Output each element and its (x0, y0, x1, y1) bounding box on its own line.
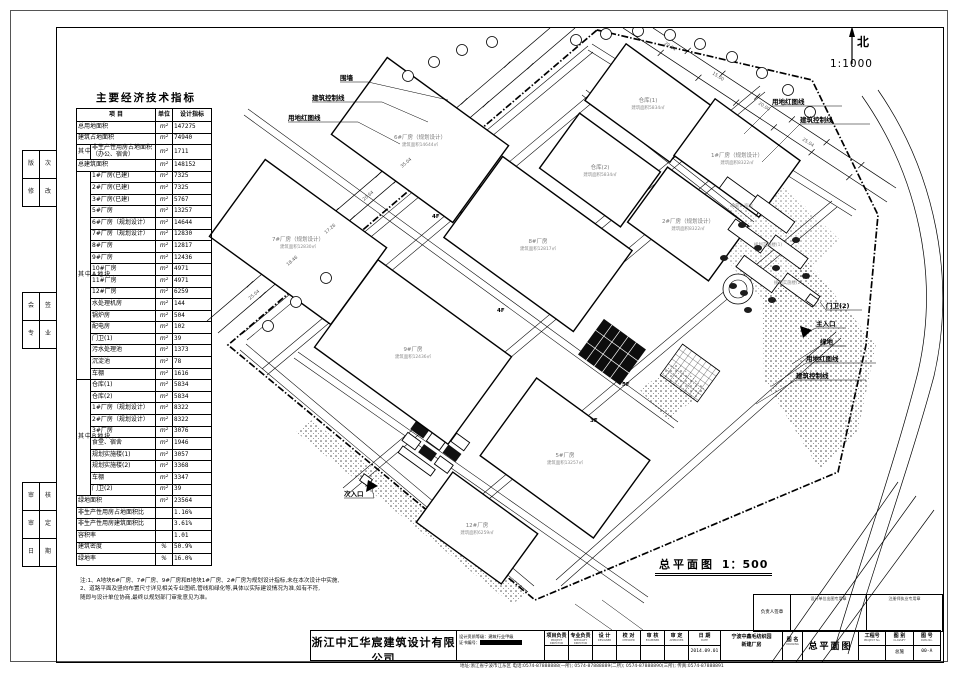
titleblock-column: 设 计DESIGNER (593, 631, 617, 660)
indicator-name: 2#厂房（规划设计） (91, 415, 156, 427)
indicator-value: 144 (173, 299, 212, 311)
group-label: 其中B地块 (77, 380, 91, 496)
indicator-name: 车棚 (91, 473, 156, 485)
indicator-value: 1616 (173, 368, 212, 380)
indicator-row: 总用地面积m²147275 (77, 122, 212, 134)
indicator-row: 绿地面积m²23564 (77, 496, 212, 508)
indicator-unit (156, 519, 173, 531)
indicator-value: 6259 (173, 287, 212, 299)
stamp-cell-registered-seal: 注册师执业专用章 (867, 595, 942, 631)
indicator-value: 1373 (173, 345, 212, 357)
binding-cell: 业 (39, 320, 57, 349)
building-area: 建筑面积12436㎡ (395, 353, 432, 360)
indicator-value: 3.61% (173, 519, 212, 531)
plan-label: 建筑控制线 (795, 371, 829, 380)
group-label: 其中 (77, 145, 91, 160)
indicator-unit: % (156, 554, 173, 566)
indicator-name: 仓库(1) (91, 380, 156, 392)
caption-title: 总平面图 (659, 558, 715, 571)
titleblock-column: 工程号PROJECT No. (859, 631, 886, 660)
indicator-name: 总用地面积 (77, 122, 156, 134)
binding-cell: 期 (39, 538, 57, 567)
col-header-item: 项 目 (77, 109, 156, 122)
plan-label: 用地红图线 (805, 354, 839, 363)
indicator-value: 78 (173, 357, 212, 369)
indicator-value: 148152 (173, 159, 212, 171)
title-block: 浙江中汇华宸建筑设计有限公司 ZHEJIANG ZHONGHUI HUACHEN… (310, 630, 941, 661)
indicator-value: 1711 (173, 145, 212, 160)
indicator-value: 1.16% (173, 507, 212, 519)
indicator-unit: m² (156, 275, 173, 287)
indicator-value: 12830 (173, 229, 212, 241)
building-name: 仓库(2) (591, 163, 610, 171)
indicator-unit: m² (156, 368, 173, 380)
plan-caption: 总平面图 1：500 (655, 556, 772, 576)
indicator-unit: m² (156, 145, 173, 160)
indicator-unit: m² (156, 206, 173, 218)
indicator-unit: m² (156, 252, 173, 264)
certificate-number-redacted (480, 640, 522, 645)
indicator-row: 污水处理池m²1373 (77, 345, 212, 357)
indicator-row: 建筑占地面积m²74940 (77, 133, 212, 145)
indicator-name: 总建筑面积 (77, 159, 156, 171)
drawing-sheet: 版次修改会签专业审核审定日期 (0, 0, 960, 674)
indicator-unit: m² (156, 229, 173, 241)
titleblock-column: 审 定APPROVER (665, 631, 688, 660)
binding-cell: 专 (22, 320, 40, 349)
indicator-row: 门卫(2)m²39 (77, 484, 212, 496)
indicator-row: 12#厂房m²6259 (77, 287, 212, 299)
note-line: 2、道路平面及竖向布置尺寸详见相关专业图纸,管线和绿化等,具体以实际建设情况为准… (80, 585, 330, 593)
indicator-name: 水处理机房 (91, 299, 156, 311)
indicator-unit (156, 530, 173, 542)
stamp-cell-design-seal: 设计单位出图专用章 (791, 595, 867, 631)
indicator-value: 3057 (173, 449, 212, 461)
indicator-value: 147275 (173, 122, 212, 134)
indicator-value: 39 (173, 333, 212, 345)
building-name: 12#厂房 (466, 521, 489, 529)
indicator-name: 非生产性用房占地面积比 (77, 507, 156, 519)
plan-label: 用地红图线 (771, 97, 805, 106)
plan-label: 主入口 (816, 319, 836, 328)
indicator-unit: m² (156, 415, 173, 427)
indicator-unit: m² (156, 133, 173, 145)
indicator-name: 污水处理池 (91, 345, 156, 357)
indicator-value: 102 (173, 322, 212, 334)
indicator-value: 5834 (173, 380, 212, 392)
floor-mark: 3F (590, 418, 598, 424)
binding-cell: 签 (39, 292, 57, 321)
building-area: 建筑面积12830㎡ (280, 243, 317, 250)
roundabout (723, 274, 753, 304)
note-line: 注:1、A地块6#厂房、7#厂房、9#厂房和B地块1#厂房、2#厂房为规划设计指… (80, 577, 330, 585)
indicator-unit: m² (156, 380, 173, 392)
indicator-row: 非生产性用房建筑面积比3.61% (77, 519, 212, 531)
building-area: 建筑面积6259㎡ (460, 529, 494, 536)
indicator-name: 3#厂房(已建) (91, 194, 156, 206)
plan-scale: 1:1000 (830, 58, 873, 70)
indicator-row: 仓库(2)m²5834 (77, 391, 212, 403)
dimension-text: 25.04 (247, 289, 261, 302)
binding-cell: 核 (39, 482, 57, 511)
indicator-row: 食堂、宿舍m²1946 (77, 438, 212, 450)
indicator-value: 1.01 (173, 530, 212, 542)
binding-cell: 改 (39, 178, 57, 207)
plan-label: 用地红图线 (287, 113, 321, 122)
date-value: 2014.09.01 (689, 646, 720, 660)
indicator-name: 12#厂房 (91, 287, 156, 299)
indicator-value: 1946 (173, 438, 212, 450)
indicator-row: 8#厂房m²12817 (77, 241, 212, 253)
indicator-unit: m² (156, 403, 173, 415)
indicator-value: 23564 (173, 496, 212, 508)
indicator-row: 水处理机房m²144 (77, 299, 212, 311)
indicator-unit: m² (156, 426, 173, 438)
indicator-unit: m² (156, 264, 173, 276)
qualification-cell: 设计资质等级：建筑行业甲级 证书编号： (457, 631, 545, 660)
notes: 注:1、A地块6#厂房、7#厂房、9#厂房和B地块1#厂房、2#厂房为规划设计指… (80, 577, 330, 602)
indicator-row: 沉淀池m²78 (77, 357, 212, 369)
floor-mark: 5F (622, 382, 630, 388)
indicator-unit: m² (156, 322, 173, 334)
indicator-table: 项 目 单位 设计指标 总用地面积m²147275建筑占地面积m²74940其中… (76, 108, 212, 566)
binding-cell: 修 (22, 178, 40, 207)
indicator-name: 1#厂房(已建) (91, 171, 156, 183)
date-column: 日 期 DATE 2014.09.01 (689, 631, 721, 660)
building-name: 1#厂房（规划设计） (711, 151, 763, 159)
indicator-row: 其中非生产性用房占地面积（办公、宿舍）m²1711 (77, 145, 212, 160)
indicator-unit: m² (156, 171, 173, 183)
solar-hatch-area (578, 319, 646, 385)
small-building-label: 食堂、宿舍 (731, 202, 754, 209)
building-name: 9#厂房 (403, 345, 423, 353)
indicator-name: 5#厂房 (91, 206, 156, 218)
indicator-name: 建筑占地面积 (77, 133, 156, 145)
indicator-unit: m² (156, 449, 173, 461)
indicator-value: 4971 (173, 275, 212, 287)
indicator-value: 504 (173, 310, 212, 322)
indicator-value: 8322 (173, 403, 212, 415)
indicator-row: 其中B地块仓库(1)m²5834 (77, 380, 212, 392)
titleblock-leaders (575, 600, 643, 630)
plan-label: 门卫(2) (826, 301, 849, 310)
indicator-value: 7325 (173, 183, 212, 195)
indicator-row: 2#厂房(已建)m²7325 (77, 183, 212, 195)
indicator-name: 容积率 (77, 530, 156, 542)
indicator-unit: m² (156, 496, 173, 508)
building-name: 7#厂房（规划设计） (272, 235, 324, 243)
binding-cell: 日 (22, 538, 40, 567)
indicator-name: 非生产性用房占地面积（办公、宿舍） (91, 145, 156, 160)
indicator-row: 配电房m²102 (77, 322, 212, 334)
note-line: 随即与设计单位协商,最终以规划部门审批意见为准。 (80, 594, 330, 602)
indicator-row: 3#厂房(已建)m²5767 (77, 194, 212, 206)
indicator-unit: m² (156, 287, 173, 299)
building-area: 建筑面积5834㎡ (583, 171, 617, 178)
indicator-unit: m² (156, 194, 173, 206)
indicator-value: 5834 (173, 391, 212, 403)
indicator-row: 车棚m²3347 (77, 473, 212, 485)
dimension-text: 20.00 (757, 101, 771, 113)
indicator-value: 16.0% (173, 554, 212, 566)
binding-cell: 次 (39, 150, 57, 179)
drawing-name: 总平面图 (803, 631, 859, 660)
indicator-value: 13257 (173, 206, 212, 218)
indicator-row: 1#厂房（规划设计）m²8322 (77, 403, 212, 415)
date-label: 日 期 (689, 632, 720, 639)
stamp-box: 负责人签章 设计单位出图专用章 注册师执业专用章 (753, 594, 943, 632)
plan-label: 围墙 (340, 73, 354, 82)
building-name: 5#厂房 (555, 451, 575, 459)
col-header-unit: 单位 (156, 109, 173, 122)
indicator-value: 5767 (173, 194, 212, 206)
indicator-name: 规划实施楼(1) (91, 449, 156, 461)
indicator-unit: m² (156, 159, 173, 171)
indicator-value: 3368 (173, 461, 212, 473)
building-area: 建筑面积12817㎡ (520, 245, 557, 252)
indicator-value: 39 (173, 484, 212, 496)
titleblock-column: 项目负责PROJECT DIRECTOR (545, 631, 569, 660)
dimension-text: 15.00 (711, 71, 725, 83)
building-name: 2#厂房（规划设计） (662, 217, 714, 225)
indicator-row: 7#厂房（规划设计）m²12830 (77, 229, 212, 241)
indicator-unit: m² (156, 333, 173, 345)
titleblock-column: 校 对CHECKER (617, 631, 641, 660)
indicator-unit: m² (156, 461, 173, 473)
indicator-name: 仓库(2) (91, 391, 156, 403)
building-area: 建筑面积14644㎡ (402, 141, 439, 148)
binding-cell: 审 (22, 510, 40, 539)
indicator-unit: m² (156, 473, 173, 485)
floor-mark: 4F (497, 308, 505, 314)
project-name-cell: 宁波中鑫毛纺织园 新建厂房 (721, 631, 783, 660)
indicator-value: 3076 (173, 426, 212, 438)
indicator-row: 规划实施楼(2)m²3368 (77, 461, 212, 473)
indicator-table-title: 主要经济技术指标 (96, 90, 196, 105)
project-name-line1: 宁波中鑫毛纺织园 (721, 634, 782, 642)
indicator-name: 6#厂房（规划设计） (91, 217, 156, 229)
indicator-name: 7#厂房（规划设计） (91, 229, 156, 241)
group-label: 其中A地块 (77, 171, 91, 380)
indicator-row: 绿地率%16.0% (77, 554, 212, 566)
building-area: 建筑面积5834㎡ (631, 104, 665, 111)
north-label: 北 (857, 33, 869, 50)
indicator-unit: m² (156, 484, 173, 496)
titleblock-column: 图 号DWG No.00-A (914, 631, 940, 660)
indicator-row: 总建筑面积m²148152 (77, 159, 212, 171)
company-cell: 浙江中汇华宸建筑设计有限公司 ZHEJIANG ZHONGHUI HUACHEN… (311, 631, 457, 660)
building-name: 6#厂房（规划设计） (394, 133, 446, 141)
indicator-name: 建筑密度 (77, 542, 156, 554)
indicator-name: 门卫(1) (91, 333, 156, 345)
building-area: 建筑面积8322㎡ (671, 225, 705, 232)
titleblock-column: 审 核EXAMINER (641, 631, 665, 660)
indicator-value: 12436 (173, 252, 212, 264)
indicator-value: 7325 (173, 171, 212, 183)
indicator-name: 车棚 (91, 368, 156, 380)
plan-label: 建筑控制线 (311, 93, 345, 102)
indicator-row: 9#厂房m²12436 (77, 252, 212, 264)
indicator-value: 74940 (173, 133, 212, 145)
indicator-value: 14644 (173, 217, 212, 229)
indicator-name: 食堂、宿舍 (91, 438, 156, 450)
indicator-unit (156, 507, 173, 519)
indicator-name: 沉淀池 (91, 357, 156, 369)
indicator-unit: m² (156, 217, 173, 229)
indicator-name: 9#厂房 (91, 252, 156, 264)
certificate-label: 证书编号： (459, 640, 480, 645)
indicator-row: 11#厂房m²4971 (77, 275, 212, 287)
indicator-row: 容积率1.01 (77, 530, 212, 542)
indicator-name: 11#厂房 (91, 275, 156, 287)
indicator-row: 其中A地块1#厂房(已建)m²7325 (77, 171, 212, 183)
col-header-value: 设计指标 (173, 109, 212, 122)
indicator-name: 绿地面积 (77, 496, 156, 508)
indicator-unit: m² (156, 310, 173, 322)
indicator-unit: m² (156, 345, 173, 357)
indicator-unit: m² (156, 438, 173, 450)
signature-columns: 项目负责PROJECT DIRECTOR专业负责SPECIALTY DIRECT… (545, 631, 689, 660)
indicator-value: 8322 (173, 415, 212, 427)
indicator-name: 配电房 (91, 322, 156, 334)
buildings: 6#厂房（规划设计）建筑面积14644㎡7#厂房（规划设计）建筑面积12830㎡… (209, 44, 820, 584)
titleblock-column: 图 别CLASSIFY总施 (886, 631, 913, 660)
indicator-row: 门卫(1)m²39 (77, 333, 212, 345)
indicator-name: 非生产性用房建筑面积比 (77, 519, 156, 531)
indicator-value: 50.9% (173, 542, 212, 554)
number-columns: 工程号PROJECT No.图 别CLASSIFY总施图 号DWG No.00-… (859, 631, 940, 660)
company-address-line: 地址:浙江省宁波市江东区 电话:0574-87888888(一所); 0574-… (460, 663, 942, 669)
indicator-name: 锅炉房 (91, 310, 156, 322)
plan-label: 绿地 (820, 337, 834, 346)
company-name: 浙江中汇华宸建筑设计有限公司 (311, 634, 456, 660)
titleblock-column: 专业负责SPECIALTY DIRECTOR (569, 631, 593, 660)
indicator-unit: % (156, 542, 173, 554)
drawing-name-label-cell: 图 名 DRAWING (783, 631, 803, 660)
binding-cell: 版 (22, 150, 40, 179)
indicator-row: 锅炉房m²504 (77, 310, 212, 322)
plan-label: 建筑控制线 (799, 115, 833, 124)
indicator-row: 车棚m²1616 (77, 368, 212, 380)
indicator-name: 规划实施楼(2) (91, 461, 156, 473)
indicator-name: 2#厂房(已建) (91, 183, 156, 195)
small-building-label: 规划实施楼(2) (774, 279, 802, 286)
indicator-row: 2#厂房（规划设计）m²8322 (77, 415, 212, 427)
indicator-row: 5#厂房m²13257 (77, 206, 212, 218)
project-name-line2: 新建厂房 (721, 642, 782, 650)
binding-cell: 定 (39, 510, 57, 539)
indicator-unit: m² (156, 357, 173, 369)
building-area: 建筑面积8322㎡ (720, 159, 754, 166)
stamp-owner-label: 负责人签章 (754, 595, 791, 631)
indicator-value: 12817 (173, 241, 212, 253)
binding-cell: 审 (22, 482, 40, 511)
indicator-unit: m² (156, 241, 173, 253)
indicator-name: 门卫(2) (91, 484, 156, 496)
indicator-name: 绿地率 (77, 554, 156, 566)
indicator-unit: m² (156, 391, 173, 403)
indicator-unit: m² (156, 299, 173, 311)
building-area: 建筑面积13257㎡ (547, 459, 584, 466)
indicator-value: 3347 (173, 473, 212, 485)
indicator-unit: m² (156, 122, 173, 134)
building-name: 8#厂房 (528, 237, 548, 245)
indicator-row: 6#厂房（规划设计）m²14644 (77, 217, 212, 229)
plan-label: 次入口 (344, 489, 364, 498)
indicator-row: 非生产性用房占地面积比1.16% (77, 507, 212, 519)
caption-scale: 1：500 (722, 558, 769, 571)
indicator-row: 建筑密度%50.9% (77, 542, 212, 554)
building-name: 仓库(1) (639, 96, 658, 104)
indicator-name: 8#厂房 (91, 241, 156, 253)
binding-cell: 会 (22, 292, 40, 321)
floor-mark: 4F (432, 214, 440, 220)
indicator-name: 1#厂房（规划设计） (91, 403, 156, 415)
indicator-value: 4971 (173, 264, 212, 276)
indicator-unit: m² (156, 183, 173, 195)
indicator-row: 规划实施楼(1)m²3057 (77, 449, 212, 461)
